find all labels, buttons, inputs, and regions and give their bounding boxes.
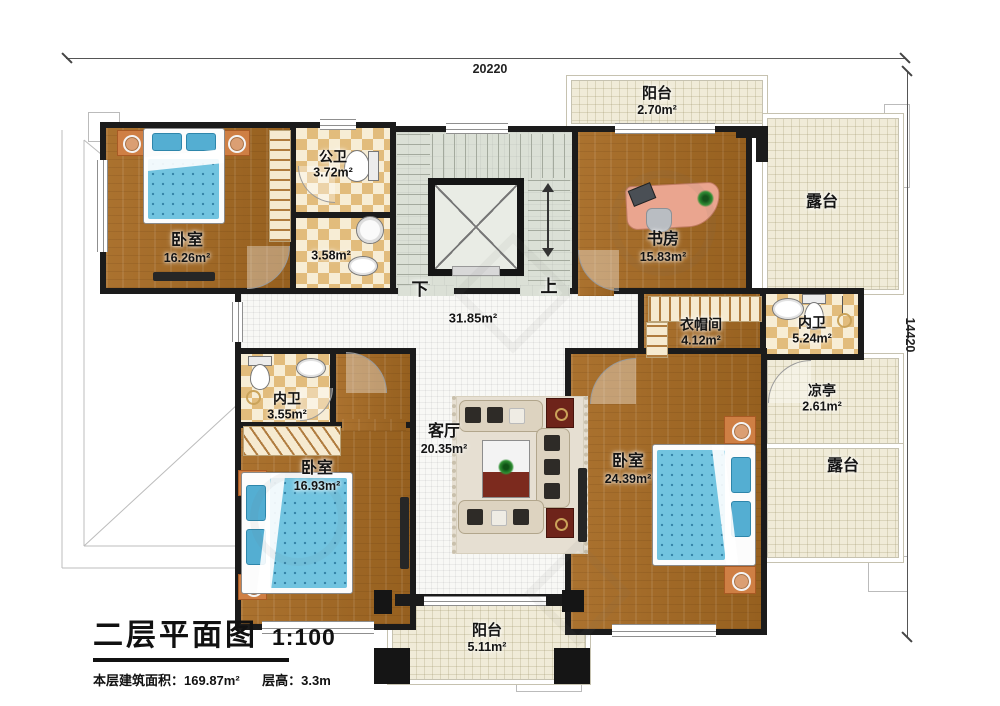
balcony-column (554, 648, 590, 684)
floor-area-value: 169.87m² (184, 673, 240, 688)
balcony-column (374, 590, 392, 614)
label-balcony-bottom: 阳台5.11m² (468, 622, 507, 654)
label-bedroom-topleft: 卧室16.26m² (164, 232, 211, 266)
sofa-bottom (458, 500, 544, 534)
elevator (428, 178, 524, 276)
label-bath-right: 内卫5.24m² (792, 314, 832, 345)
window (320, 119, 356, 130)
sofa-top (459, 400, 543, 432)
pillow (186, 133, 216, 151)
floor-height-value: 3.3m (301, 673, 331, 688)
title-underline (93, 658, 289, 662)
label-bedroom-bottomleft: 卧室16.93m² (294, 460, 341, 494)
balcony-column (562, 590, 584, 612)
plant (498, 459, 514, 475)
toilet (250, 364, 270, 390)
plan-title: 二层平面图 (93, 619, 258, 652)
nightstand (117, 130, 145, 156)
wardrobe-rail (646, 322, 668, 358)
floor-area-label: 本层建筑面积： (93, 673, 184, 688)
label-balcony-top: 阳台2.70m² (637, 85, 677, 117)
stair-arrow-up (542, 183, 554, 192)
pillow (731, 457, 751, 493)
balcony-column (374, 648, 410, 684)
stair-treads (432, 134, 570, 178)
nightstand (222, 130, 250, 156)
window (97, 160, 108, 252)
wall-segment (756, 126, 768, 162)
label-terrace-right: 露台 (827, 458, 859, 477)
washing-machine (356, 216, 384, 244)
plant (697, 190, 714, 207)
double-bed (143, 128, 225, 224)
floor-height-label: 层高： (262, 673, 301, 688)
label-bedroom-bottomright: 卧室24.39m² (605, 453, 652, 487)
nightstand (724, 416, 756, 444)
label-pavilion: 凉亭2.61m² (802, 382, 842, 413)
label-hall-area: 31.85m² (449, 310, 497, 325)
window (232, 302, 243, 342)
window (446, 123, 508, 134)
tv (153, 272, 215, 281)
label-terrace-top-right: 露台 (806, 194, 838, 213)
stair-treads (397, 134, 430, 286)
label-wardrobe: 衣帽间4.12m² (680, 316, 722, 347)
title-block: 二层平面图1:100 本层建筑面积：169.87m² 层高：3.3m (93, 610, 336, 690)
tv (400, 497, 409, 569)
dimension-top-value: 20220 (455, 62, 525, 76)
tv (578, 468, 587, 542)
closet-rail (269, 130, 291, 242)
dimension-right-value: 14420 (903, 315, 917, 355)
pendant-lamp (837, 313, 852, 328)
washbasin (296, 358, 326, 378)
label-living: 客厅20.35m² (421, 423, 468, 457)
lamp-cord (842, 296, 843, 314)
side-table (546, 508, 574, 538)
stair-treads (528, 180, 570, 284)
plan-scale: 1:100 (272, 624, 336, 650)
stair-arrow-down (542, 248, 554, 257)
window (612, 624, 716, 637)
floor-plan: 卧室16.26m² 公卫3.72m² 3.58m² 下 上 31.85m² 书房… (0, 0, 1000, 706)
stair-direction-line (547, 192, 549, 248)
pendant-lamp (246, 390, 261, 405)
pillow (152, 133, 182, 151)
window (615, 123, 715, 134)
toilet-tank (368, 151, 379, 181)
pillow (246, 485, 266, 521)
label-stair-down: 下 (412, 280, 429, 300)
dimension-line-right (907, 72, 908, 638)
label-shower-area: 3.58m² (311, 249, 351, 264)
elevator-door (452, 266, 500, 276)
label-bath-top: 公卫3.72m² (313, 148, 353, 179)
nightstand (724, 566, 756, 594)
door-opening (342, 419, 406, 431)
sofa-right (536, 428, 570, 508)
side-table (546, 398, 574, 428)
washbasin (348, 256, 378, 276)
label-bath-left: 内卫3.55m² (267, 390, 307, 421)
office-chair (646, 208, 672, 232)
dimension-line-top (66, 58, 906, 59)
wardrobe-rail (243, 426, 341, 456)
double-bed (652, 444, 756, 566)
coffee-table (482, 440, 530, 498)
label-study: 书房15.83m² (640, 231, 687, 265)
label-stair-up: 上 (541, 277, 558, 297)
window (424, 596, 546, 606)
